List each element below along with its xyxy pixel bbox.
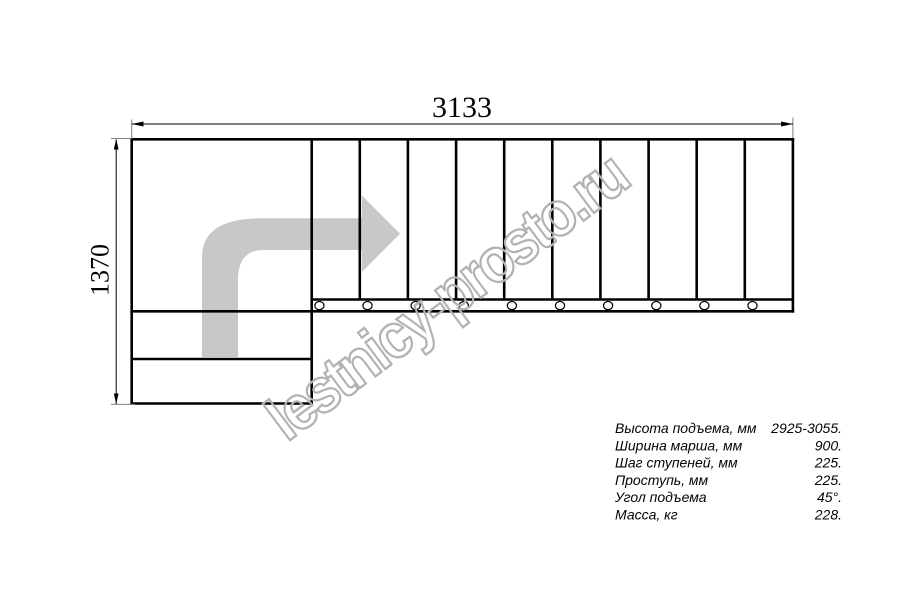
svg-text:45°.: 45°. xyxy=(817,489,842,505)
svg-text:3133: 3133 xyxy=(432,91,492,124)
svg-text:1370: 1370 xyxy=(86,244,115,296)
svg-text:Высота подъема, мм: Высота подъема, мм xyxy=(615,420,757,436)
svg-text:Ширина марша, мм: Ширина марша, мм xyxy=(615,437,743,453)
svg-text:228.: 228. xyxy=(814,507,842,523)
svg-text:2925-3055.: 2925-3055. xyxy=(770,420,842,436)
svg-text:Проступь, мм: Проступь, мм xyxy=(615,472,709,488)
svg-text:Масса, кг: Масса, кг xyxy=(615,507,678,523)
svg-text:Шаг ступеней, мм: Шаг ступеней, мм xyxy=(615,455,738,471)
svg-text:Угол подъема: Угол подъема xyxy=(614,489,707,505)
svg-text:225.: 225. xyxy=(814,472,842,488)
svg-text:225.: 225. xyxy=(814,455,842,471)
svg-text:900.: 900. xyxy=(815,437,842,453)
